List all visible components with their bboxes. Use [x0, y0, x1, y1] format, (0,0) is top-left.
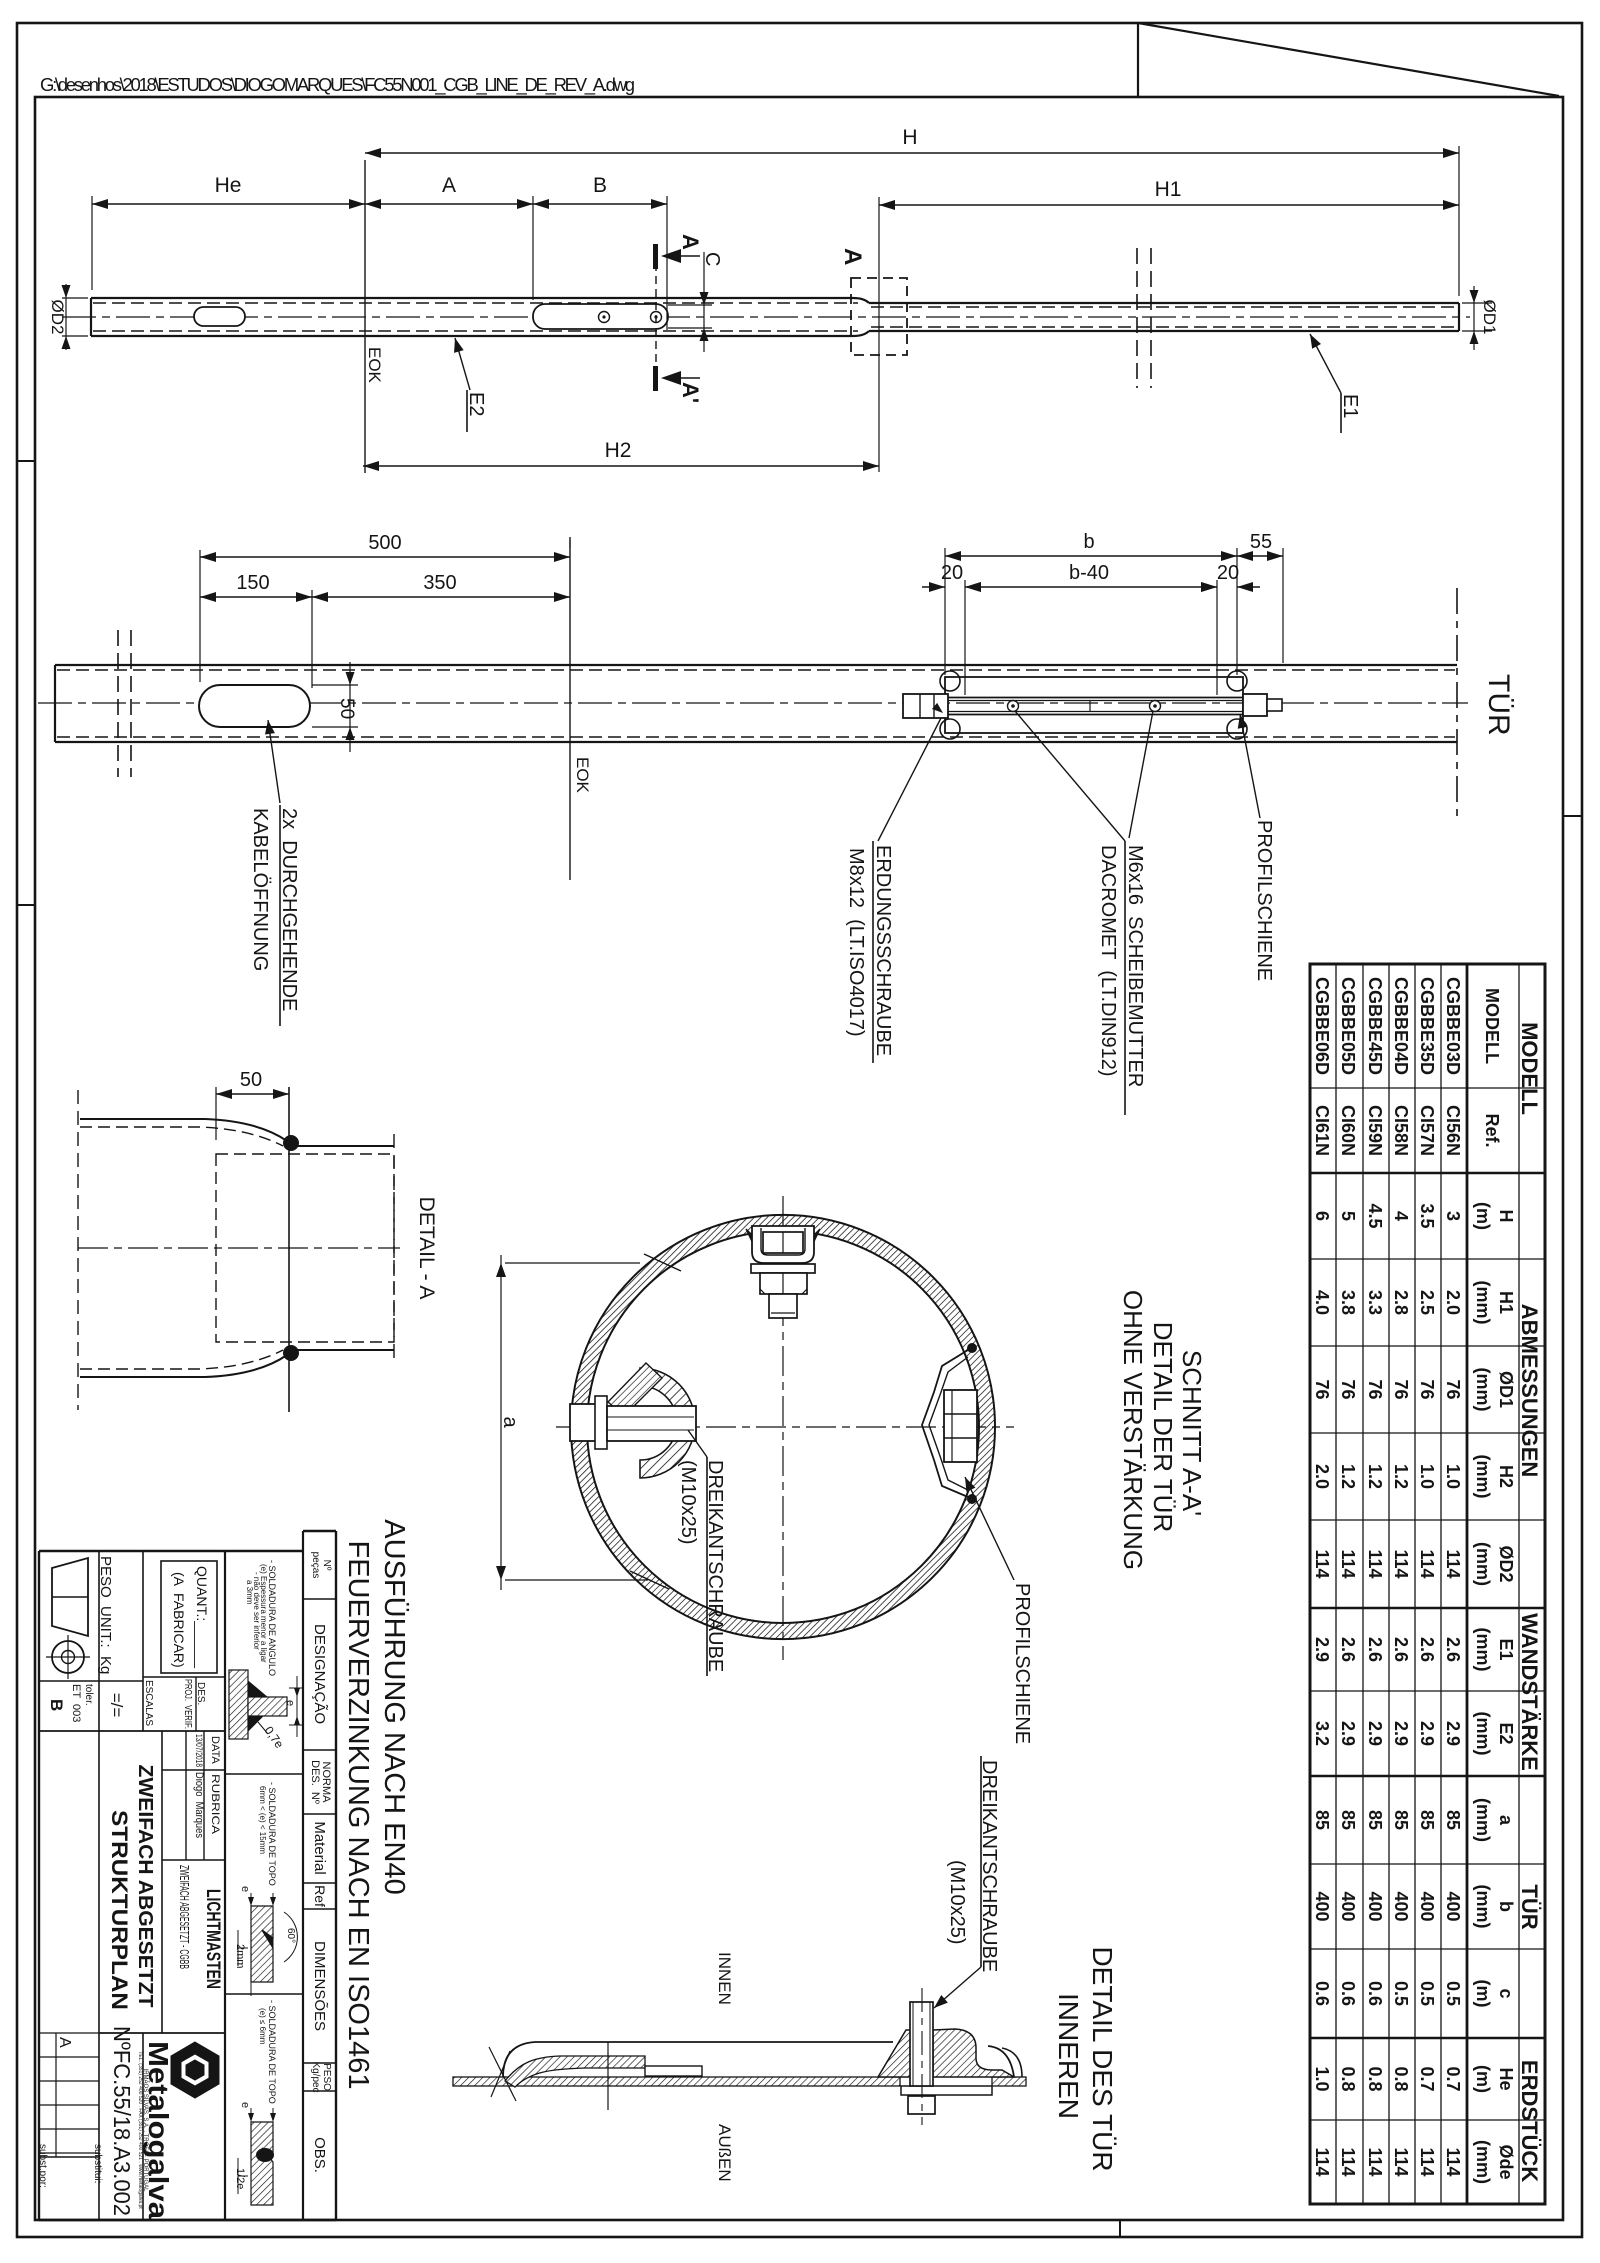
svg-text:e: e	[239, 2102, 251, 2108]
svg-text:E2: E2	[465, 392, 487, 416]
svg-text:3.3: 3.3	[1365, 1290, 1385, 1315]
svg-text:E2: E2	[1496, 1722, 1516, 1744]
svg-text:ZWEIFACH ABGESETZT: ZWEIFACH ABGESETZT	[134, 1765, 156, 2008]
svg-text:0.7: 0.7	[1417, 2066, 1437, 2091]
svg-text:H2: H2	[605, 439, 632, 462]
svg-text:400: 400	[1338, 1891, 1358, 1921]
svg-text:6: 6	[1312, 1211, 1332, 1221]
svg-text:EOK: EOK	[573, 757, 592, 794]
svg-text:ØD2: ØD2	[1496, 1545, 1516, 1582]
svg-text:G:\desenhos\2018\ESTUDOS\DIOGO: G:\desenhos\2018\ESTUDOS\DIOGOMARQUES\FC…	[40, 74, 635, 96]
svg-text:ERDUNGSSCHRAUBE: ERDUNGSSCHRAUBE	[872, 845, 894, 1056]
svg-text:400: 400	[1417, 1891, 1437, 1921]
svg-text:(mm): (mm)	[1473, 1798, 1493, 1842]
svg-text:76: 76	[1365, 1379, 1385, 1399]
svg-text:2.0: 2.0	[1443, 1290, 1463, 1315]
svg-text:AUSFÜHRUNG NACH EN40: AUSFÜHRUNG NACH EN40	[378, 1519, 410, 1894]
svg-text:Kg/pec: Kg/pec	[310, 2061, 321, 2092]
svg-text:E1: E1	[1496, 1638, 1516, 1660]
svg-text:DESIGNAÇÃO: DESIGNAÇÃO	[311, 1624, 328, 1724]
svg-text:PROFILSCHIENE: PROFILSCHIENE	[1253, 820, 1275, 981]
svg-text:(mm): (mm)	[1473, 1712, 1493, 1756]
svg-text:subst.por:: subst.por:	[37, 2144, 48, 2188]
svg-text:350: 350	[423, 572, 456, 594]
svg-text:INNEN: INNEN	[715, 1952, 734, 2005]
svg-text:MODELL: MODELL	[1482, 988, 1502, 1064]
svg-text:DREIKANTSCHRAUBE: DREIKANTSCHRAUBE	[704, 1460, 726, 1672]
svg-text:4.5: 4.5	[1365, 1203, 1385, 1228]
svg-text:1/2e: 1/2e	[234, 2168, 246, 2189]
svg-text:M6x16 SCHEIBEMUTTER: M6x16 SCHEIBEMUTTER	[1124, 845, 1146, 1087]
svg-text:EOK: EOK	[365, 347, 384, 384]
svg-text:0.6: 0.6	[1312, 1981, 1332, 2006]
svg-text:AUßEN: AUßEN	[715, 2124, 734, 2182]
svg-text:(mm): (mm)	[1473, 1368, 1493, 1412]
svg-text:85: 85	[1338, 1810, 1358, 1830]
svg-text:114: 114	[1365, 2147, 1385, 2176]
svg-text:1.0: 1.0	[1443, 1464, 1463, 1489]
svg-text:(mm): (mm)	[1473, 1542, 1493, 1586]
svg-text:400: 400	[1391, 1891, 1411, 1921]
svg-text:CGBBE06D: CGBBE06D	[1312, 977, 1332, 1075]
svg-text:A: A	[56, 2037, 73, 2048]
svg-text:DETAIL - A: DETAIL - A	[415, 1197, 438, 1300]
svg-text:b-40: b-40	[1069, 562, 1109, 584]
svg-text:3.5: 3.5	[1417, 1203, 1437, 1228]
svg-text:H2: H2	[1496, 1465, 1516, 1488]
svg-text:CI58N: CI58N	[1391, 1105, 1411, 1156]
svg-text:114: 114	[1417, 1549, 1437, 1578]
svg-text:SCHNITT A-A': SCHNITT A-A'	[1177, 1350, 1207, 1516]
svg-text:(M10x25): (M10x25)	[677, 1460, 699, 1544]
svg-text:He: He	[215, 174, 242, 197]
svg-text:INNEREN: INNEREN	[1053, 1993, 1084, 2119]
svg-text:76: 76	[1417, 1379, 1437, 1399]
svg-text:Kg: Kg	[97, 1656, 114, 1674]
svg-text:(m): (m)	[1473, 1202, 1493, 1230]
svg-text:CI60N: CI60N	[1338, 1105, 1358, 1156]
svg-text:CGBBE35D: CGBBE35D	[1417, 977, 1437, 1075]
svg-text:0.8: 0.8	[1338, 2066, 1358, 2091]
svg-text:50: 50	[240, 1069, 262, 1091]
svg-text:0.6: 0.6	[1338, 1981, 1358, 2006]
svg-text:Diogo Marques: Diogo Marques	[193, 1772, 205, 1838]
svg-text:c: c	[1496, 1988, 1516, 1998]
svg-text:A': A'	[678, 382, 703, 403]
svg-text:5: 5	[1338, 1211, 1358, 1221]
svg-text:peças: peças	[310, 1552, 321, 1579]
svg-text:CI59N: CI59N	[1365, 1105, 1385, 1156]
svg-text:CGBBE05D: CGBBE05D	[1338, 977, 1358, 1075]
svg-text:CGBBE04D: CGBBE04D	[1391, 977, 1411, 1075]
svg-text:400: 400	[1312, 1891, 1332, 1921]
svg-text:85: 85	[1417, 1810, 1437, 1830]
svg-text:76: 76	[1338, 1379, 1358, 1399]
svg-text:A: A	[442, 174, 456, 197]
svg-text:CGBBE45D: CGBBE45D	[1365, 977, 1385, 1075]
svg-text:FEUERVERZINKUNG NACH EN ISO146: FEUERVERZINKUNG NACH EN ISO1461	[342, 1541, 374, 2090]
svg-text:50: 50	[336, 698, 357, 719]
svg-text:4: 4	[1391, 1211, 1411, 1221]
svg-text:0.8: 0.8	[1365, 2066, 1385, 2091]
svg-text:2.0: 2.0	[1312, 1464, 1332, 1489]
svg-text:1.2: 1.2	[1365, 1464, 1385, 1489]
svg-text:OHNE VERSTÄRKUNG: OHNE VERSTÄRKUNG	[1118, 1290, 1148, 1570]
svg-text:ØD1: ØD1	[1496, 1371, 1516, 1408]
svg-text:114: 114	[1417, 2147, 1437, 2176]
svg-text:LICHTMASTEN: LICHTMASTEN	[202, 1889, 223, 1989]
svg-text:DES.: DES.	[195, 1682, 206, 1705]
svg-text:114: 114	[1443, 1549, 1463, 1578]
svg-text:OBS.: OBS.	[311, 2137, 328, 2173]
svg-text:PESO UNIT.:: PESO UNIT.:	[97, 1556, 114, 1648]
svg-text:1.0: 1.0	[1312, 2066, 1332, 2091]
svg-text:1.0: 1.0	[1417, 1464, 1437, 1489]
svg-text:3.2: 3.2	[1312, 1721, 1332, 1746]
svg-text:2.6: 2.6	[1417, 1637, 1437, 1662]
svg-text:(mm): (mm)	[1473, 1885, 1493, 1929]
svg-text:2.9: 2.9	[1338, 1721, 1358, 1746]
svg-text:ET 003: ET 003	[70, 1684, 82, 1722]
svg-text:A: A	[839, 248, 866, 265]
svg-text:114: 114	[1365, 1549, 1385, 1578]
svg-text:TÜR: TÜR	[1517, 1884, 1542, 1929]
svg-text:- SOLDADURA DE TOPO: - SOLDADURA DE TOPO	[267, 1782, 277, 1886]
svg-text:DIMENSÕES: DIMENSÕES	[311, 1941, 328, 2031]
svg-text:2.6: 2.6	[1443, 1637, 1463, 1662]
svg-text:(A FABRICAR): (A FABRICAR)	[171, 1572, 187, 1668]
svg-text:toler.: toler.	[83, 1684, 94, 1706]
svg-text:PROJ.: PROJ.	[182, 1679, 193, 1701]
svg-text:DATA: DATA	[209, 1736, 221, 1764]
svg-text:CI57N: CI57N	[1417, 1105, 1437, 1156]
svg-text:3.8: 3.8	[1338, 1290, 1358, 1315]
svg-text:DETAIL DER TÜR: DETAIL DER TÜR	[1148, 1322, 1178, 1532]
svg-text:CI61N: CI61N	[1312, 1105, 1332, 1156]
svg-text:Ref.: Ref.	[1482, 1113, 1502, 1147]
svg-text:(m): (m)	[1473, 1980, 1493, 2008]
svg-text:CI56N: CI56N	[1443, 1105, 1463, 1156]
svg-text:B: B	[47, 1699, 66, 1711]
svg-text:0.7: 0.7	[1443, 2066, 1463, 2091]
svg-text:DACROMET (LT.DIN912): DACROMET (LT.DIN912)	[1097, 845, 1119, 1077]
svg-text:H: H	[902, 126, 917, 149]
svg-text:2.8: 2.8	[1391, 1290, 1411, 1315]
svg-text:2.6: 2.6	[1338, 1637, 1358, 1662]
svg-text:114: 114	[1338, 1549, 1358, 1578]
svg-text:a: a	[499, 1416, 521, 1428]
svg-text:2.9: 2.9	[1443, 1721, 1463, 1746]
svg-text:ØD2: ØD2	[48, 300, 67, 335]
svg-text:85: 85	[1443, 1810, 1463, 1830]
svg-text:(mm): (mm)	[1473, 1455, 1493, 1499]
svg-text:4.0: 4.0	[1312, 1290, 1332, 1315]
svg-text:76: 76	[1391, 1379, 1411, 1399]
svg-text:MODELL: MODELL	[1517, 1022, 1542, 1115]
svg-text:C: C	[701, 252, 723, 266]
svg-text:H1: H1	[1155, 178, 1182, 201]
svg-text:TÜR: TÜR	[1482, 674, 1515, 736]
svg-text:e: e	[284, 1700, 296, 1706]
svg-text:STRUKTURPLAN: STRUKTURPLAN	[107, 1810, 132, 2010]
svg-text:55: 55	[1250, 531, 1272, 553]
svg-text:ABMESSUNGEN: ABMESSUNGEN	[1517, 1304, 1542, 1478]
svg-text:85: 85	[1365, 1810, 1385, 1830]
svg-text:ERDSTÜCK: ERDSTÜCK	[1517, 2060, 1542, 2182]
svg-text:114: 114	[1312, 2147, 1332, 2176]
svg-text:0.6: 0.6	[1365, 1981, 1385, 2006]
svg-text:ZWEIFACH ABGESETZT - CGBB: ZWEIFACH ABGESETZT - CGBB	[177, 1865, 192, 1969]
svg-text:H: H	[1496, 1210, 1516, 1223]
svg-text:2.9: 2.9	[1312, 1637, 1332, 1662]
svg-text:13/07/2018: 13/07/2018	[193, 1734, 204, 1767]
svg-text:B: B	[593, 174, 607, 197]
svg-text:VERIF.: VERIF.	[182, 1705, 193, 1729]
svg-text:Material: Material	[311, 1821, 328, 1874]
svg-text:0.5: 0.5	[1417, 1981, 1437, 2006]
svg-text:(e) ≤ 6mm: (e) ≤ 6mm	[258, 2008, 267, 2045]
svg-text:- SOLDADURA DE TOPO: - SOLDADURA DE TOPO	[267, 2000, 277, 2104]
svg-text:DREIKANTSCHRAUBE: DREIKANTSCHRAUBE	[978, 1760, 1000, 1972]
svg-text:76: 76	[1312, 1379, 1332, 1399]
svg-text:85: 85	[1312, 1810, 1332, 1830]
svg-text:E1: E1	[1339, 394, 1361, 418]
svg-text:Nº: Nº	[321, 1560, 332, 1571]
svg-text:(mm): (mm)	[1473, 2140, 1493, 2184]
svg-text:substitui:: substitui:	[92, 2144, 103, 2183]
svg-text:a 3mm: a 3mm	[245, 1580, 254, 1605]
svg-text:2x DURCHGEHENDE: 2x DURCHGEHENDE	[278, 808, 300, 1011]
svg-text:2.6: 2.6	[1391, 1637, 1411, 1662]
svg-text:DETAIL DES TÜR: DETAIL DES TÜR	[1087, 1946, 1118, 2171]
svg-text:400: 400	[1443, 1891, 1463, 1921]
svg-text:=/=: =/=	[107, 1693, 126, 1718]
svg-text:M8x12 (LT.ISO4017): M8x12 (LT.ISO4017)	[845, 848, 867, 1037]
svg-text:1.2: 1.2	[1391, 1464, 1411, 1489]
svg-text:QUANT.:______: QUANT.:______	[194, 1566, 210, 1668]
svg-text:He: He	[1496, 2067, 1516, 2090]
svg-text:b: b	[1083, 531, 1094, 553]
svg-text:A: A	[678, 234, 703, 250]
svg-text:DES. Nº: DES. Nº	[309, 1760, 321, 1804]
svg-text:(mm): (mm)	[1473, 1281, 1493, 1325]
svg-text:PESO: PESO	[321, 2063, 332, 2091]
svg-text:(mm): (mm)	[1473, 1628, 1493, 1672]
svg-text:114: 114	[1391, 1549, 1411, 1578]
svg-text:b: b	[1496, 1901, 1516, 1912]
svg-text:20: 20	[1217, 562, 1239, 584]
svg-text:114: 114	[1312, 1549, 1332, 1578]
svg-text:20: 20	[941, 562, 963, 584]
svg-text:ESCALAS: ESCALAS	[143, 1680, 154, 1726]
svg-text:150: 150	[236, 572, 269, 594]
svg-text:500: 500	[368, 532, 401, 554]
svg-text:2.9: 2.9	[1365, 1721, 1385, 1746]
svg-text:Øde: Øde	[1496, 2144, 1516, 2179]
svg-text:0.5: 0.5	[1443, 1981, 1463, 2006]
svg-text:6mm < (e) < 15mm: 6mm < (e) < 15mm	[258, 1786, 267, 1854]
svg-text:76: 76	[1443, 1379, 1463, 1399]
svg-text:TEL. (351) 252 400 520 . FAX (: TEL. (351) 252 400 520 . FAX (351) 252 4…	[137, 2051, 143, 2209]
svg-text:a: a	[1496, 1815, 1516, 1826]
svg-text:PROFILSCHIENE: PROFILSCHIENE	[1011, 1583, 1033, 1744]
svg-text:(M10x25): (M10x25)	[946, 1860, 968, 1944]
svg-text:114: 114	[1338, 2147, 1358, 2176]
svg-text:114: 114	[1443, 2147, 1463, 2176]
svg-text:2.5: 2.5	[1417, 1290, 1437, 1315]
svg-text:CGBBE03D: CGBBE03D	[1443, 977, 1463, 1075]
svg-text:2.9: 2.9	[1417, 1721, 1437, 1746]
svg-text:0.8: 0.8	[1391, 2066, 1411, 2091]
svg-text:(m): (m)	[1473, 2065, 1493, 2093]
svg-text:Ref: Ref	[312, 1885, 328, 1907]
svg-text:114: 114	[1391, 2147, 1411, 2176]
svg-text:85: 85	[1391, 1810, 1411, 1830]
svg-text:2.9: 2.9	[1391, 1721, 1411, 1746]
svg-text:1.2: 1.2	[1338, 1464, 1358, 1489]
svg-text:0.5: 0.5	[1391, 1981, 1411, 2006]
svg-text:KABELÖFFNUNG: KABELÖFFNUNG	[249, 808, 271, 971]
svg-text:WANDSTÄRKE: WANDSTÄRKE	[1517, 1613, 1542, 1771]
svg-text:H1: H1	[1496, 1291, 1516, 1314]
svg-text:3: 3	[1443, 1211, 1463, 1221]
svg-text:RUBRICA: RUBRICA	[209, 1774, 221, 1835]
svg-text:NºFC.55/18.A3.002: NºFC.55/18.A3.002	[109, 2026, 135, 2216]
svg-text:400: 400	[1365, 1891, 1385, 1921]
svg-text:60°: 60°	[285, 1928, 296, 1943]
svg-text:2.6: 2.6	[1365, 1637, 1385, 1662]
svg-text:ØD1: ØD1	[1480, 300, 1499, 335]
svg-text:e: e	[239, 1886, 251, 1892]
